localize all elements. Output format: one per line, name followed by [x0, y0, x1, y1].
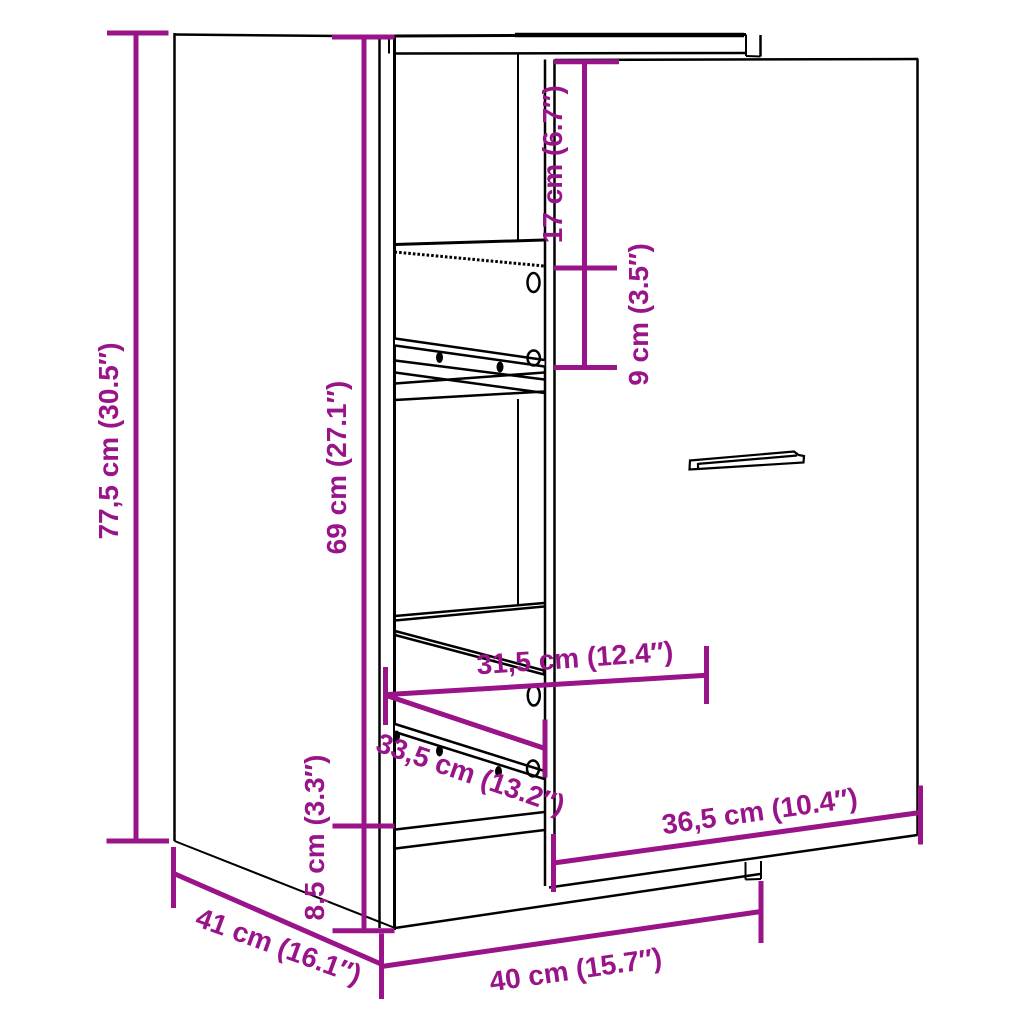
svg-text:8,5 cm (3.3″): 8,5 cm (3.3″) — [299, 755, 330, 921]
svg-text:9 cm (3.5″): 9 cm (3.5″) — [623, 243, 654, 386]
svg-text:69 cm (27.1″): 69 cm (27.1″) — [321, 381, 352, 555]
svg-text:77,5 cm (30.5″): 77,5 cm (30.5″) — [93, 342, 124, 539]
svg-text:17 cm (6.7″): 17 cm (6.7″) — [537, 85, 568, 243]
